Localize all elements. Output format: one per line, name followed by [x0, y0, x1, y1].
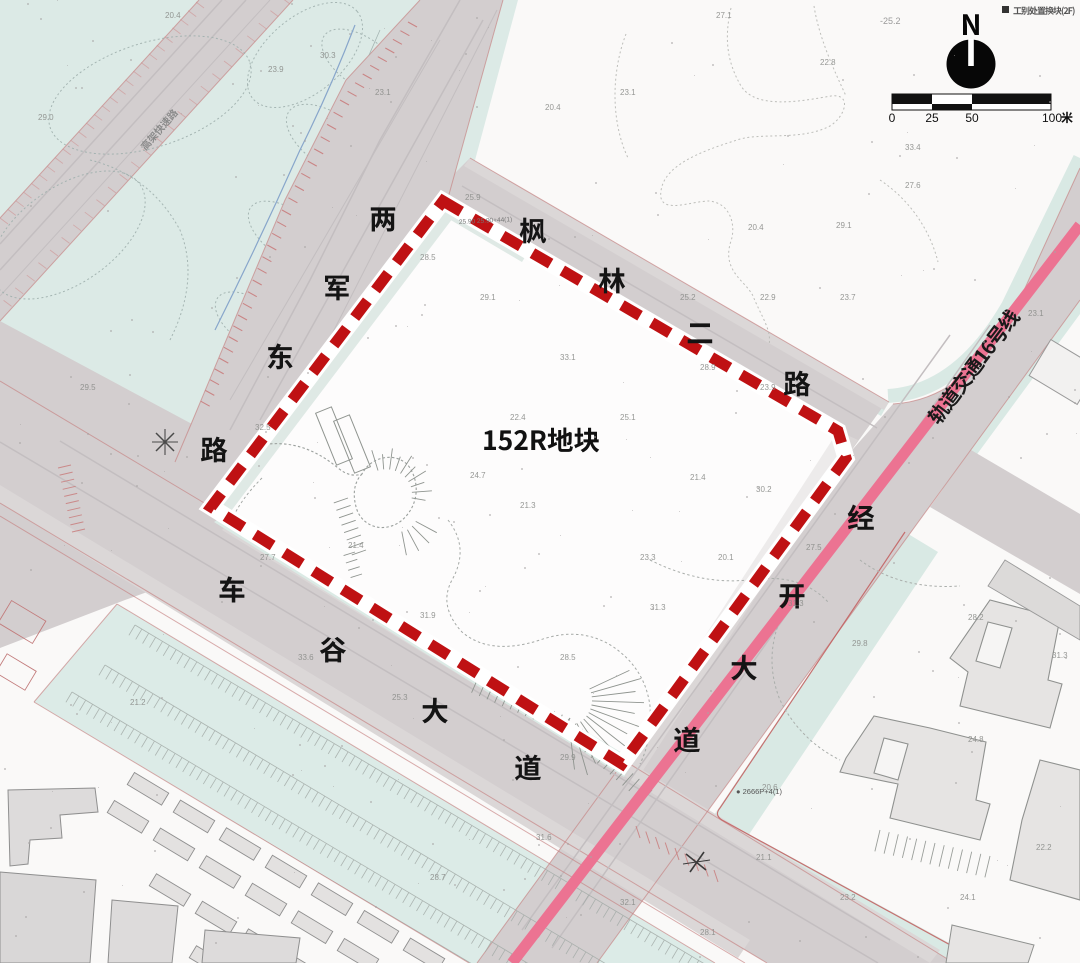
svg-text:22.4: 22.4	[510, 413, 526, 422]
svg-text:29.8: 29.8	[852, 639, 868, 648]
svg-text:24.1: 24.1	[960, 893, 976, 902]
svg-text:24.8: 24.8	[968, 735, 984, 744]
svg-text:30.2: 30.2	[756, 485, 772, 494]
svg-text:22.9: 22.9	[760, 293, 776, 302]
svg-text:28.9: 28.9	[700, 363, 716, 372]
svg-text:23.1: 23.1	[375, 88, 391, 97]
svg-text:22.8: 22.8	[820, 58, 836, 67]
svg-text:21.2: 21.2	[130, 698, 146, 707]
svg-text:31.3: 31.3	[650, 603, 666, 612]
svg-text:50: 50	[965, 111, 979, 125]
svg-text:23.9: 23.9	[760, 383, 776, 392]
svg-text:30.3: 30.3	[320, 51, 336, 60]
svg-text:33.6: 33.6	[298, 653, 314, 662]
svg-text:27.6: 27.6	[905, 181, 921, 190]
svg-text:23.2: 23.2	[840, 893, 856, 902]
svg-text:23.9: 23.9	[268, 65, 284, 74]
svg-text:33.1: 33.1	[560, 353, 576, 362]
svg-text:0: 0	[889, 111, 896, 125]
svg-text:32.5: 32.5	[255, 423, 271, 432]
svg-text:29.1: 29.1	[480, 293, 496, 302]
svg-text:33.4: 33.4	[905, 143, 921, 152]
svg-text:29.1: 29.1	[836, 221, 852, 230]
svg-text:28.2: 28.2	[968, 613, 984, 622]
svg-text:25.1: 25.1	[620, 413, 636, 422]
svg-text:29.9: 29.9	[560, 753, 576, 762]
svg-text:31.6: 31.6	[536, 833, 552, 842]
svg-text:20.6: 20.6	[762, 783, 778, 792]
svg-text:21.1: 21.1	[756, 853, 772, 862]
svg-text:27.7: 27.7	[260, 553, 276, 562]
svg-text:23.1: 23.1	[620, 88, 636, 97]
svg-text:29.0: 29.0	[38, 113, 54, 122]
svg-text:21.4: 21.4	[690, 473, 706, 482]
svg-text:27.5: 27.5	[806, 543, 822, 552]
svg-text:20.4: 20.4	[165, 11, 181, 20]
svg-text:25.2: 25.2	[680, 293, 696, 302]
svg-text:21.3: 21.3	[520, 501, 536, 510]
svg-text:20.4: 20.4	[545, 103, 561, 112]
svg-text:31.3: 31.3	[788, 599, 804, 608]
svg-text:-25.2: -25.2	[880, 16, 901, 26]
svg-text:21.4: 21.4	[348, 541, 364, 550]
svg-text:25: 25	[925, 111, 939, 125]
svg-text:28.1: 28.1	[700, 928, 716, 937]
svg-text:23.3: 23.3	[640, 553, 656, 562]
svg-text:25.3: 25.3	[392, 693, 408, 702]
svg-text:32.1: 32.1	[620, 898, 636, 907]
svg-text:23.7: 23.7	[840, 293, 856, 302]
svg-text:29.5: 29.5	[80, 383, 96, 392]
svg-text:28.5: 28.5	[560, 653, 576, 662]
svg-text:24.7: 24.7	[470, 471, 486, 480]
svg-text:27.1: 27.1	[716, 11, 732, 20]
svg-text:100: 100	[1042, 111, 1062, 125]
svg-text:23.1: 23.1	[1028, 309, 1044, 318]
svg-text:31.9: 31.9	[420, 611, 436, 620]
svg-text:28.5: 28.5	[420, 253, 436, 262]
svg-text:22.2: 22.2	[1036, 843, 1052, 852]
svg-text:20.4: 20.4	[748, 223, 764, 232]
svg-text:25.9: 25.9	[465, 193, 481, 202]
svg-text:28.7: 28.7	[430, 873, 446, 882]
svg-text:20.1: 20.1	[718, 553, 734, 562]
